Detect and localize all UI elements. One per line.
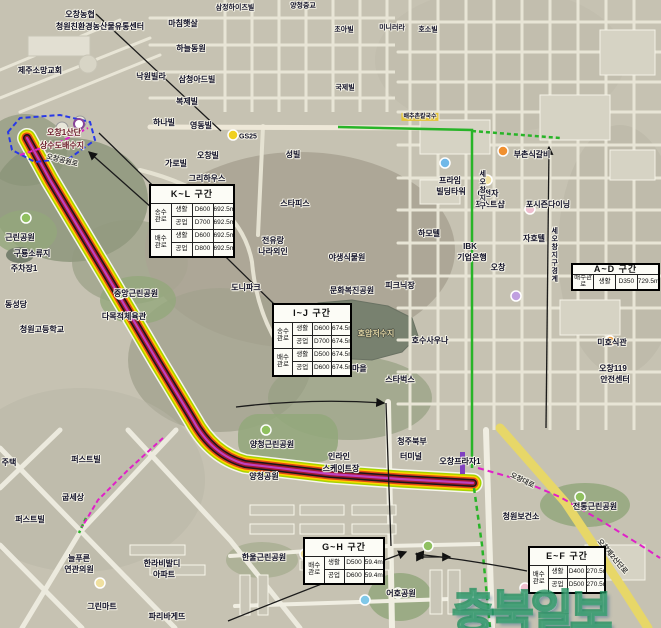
section-table-title: K~L 구간	[150, 185, 234, 203]
pipe-value-cell: 692.5m	[213, 203, 234, 216]
poi-blue	[440, 158, 450, 168]
pipe-value-cell: 692.5m	[213, 230, 234, 243]
pipe-group-label: 송수 관로	[150, 203, 171, 229]
poi-cream	[95, 578, 105, 588]
pipe-value-cell: D700	[192, 217, 213, 230]
pipe-value-cell: 생활	[324, 557, 344, 570]
pipe-value-cell: D600	[192, 230, 213, 243]
section-table-GH: G~H 구간배수 관로생활D50059.4m공업D60059.4m	[303, 537, 385, 585]
pipe-value-cell: 생활	[293, 349, 313, 362]
section-table-title: E~F 구간	[529, 547, 605, 566]
pipe-value-cell: 270.5m	[586, 579, 605, 593]
pipe-value-cell: 674.5m	[332, 322, 352, 335]
pipe-value-cell: 729.5m	[637, 275, 659, 290]
pipe-group-label: 배수 관로	[304, 557, 324, 584]
pipe-value-cell: 공업	[324, 570, 344, 584]
pipe-group-label: 배수 관로	[273, 349, 293, 376]
pipe-value-cell: 270.5m	[586, 566, 605, 579]
poi-park	[21, 213, 31, 223]
pipe-value-cell: 공업	[171, 243, 192, 257]
pipe-group-label: 배수 관로	[150, 230, 171, 257]
pipe-value-cell: 생활	[171, 203, 192, 216]
pipe-group-label: 송수 관로	[273, 322, 293, 348]
pipe-value-cell: 공업	[171, 217, 192, 230]
poi-park	[115, 289, 125, 299]
pipe-value-cell: D600	[312, 362, 332, 376]
pipe-value-cell: D400	[567, 566, 586, 579]
pipe-value-cell: 생활	[293, 322, 313, 335]
poi-park	[423, 541, 433, 551]
poi-restaurant	[498, 146, 508, 156]
section-table-KL: K~L 구간송수 관로생활D600692.5m공업D700692.5m배수 관로…	[149, 184, 235, 258]
pipe-value-cell: D500	[312, 349, 332, 362]
pipe-value-cell: 생활	[171, 230, 192, 243]
pipe-value-cell: 59.4m	[364, 570, 384, 584]
poi-restaurant	[605, 336, 615, 346]
pipe-value-cell: D600	[192, 203, 213, 216]
pipe-value-cell: 공업	[293, 336, 313, 349]
section-table-AD: A~D 구간배수관로생활D350729.5m	[571, 263, 660, 291]
pipe-value-cell: D700	[312, 336, 332, 349]
pipe-value-cell: 생활	[594, 275, 616, 290]
pipe-value-cell: 674.5m	[332, 349, 352, 362]
section-table-EF: E~F 구간배수 관로생활D400270.5m공업D500270.5m	[528, 546, 606, 594]
section-table-title: G~H 구간	[304, 538, 384, 557]
poi-blue	[360, 595, 370, 605]
pipe-value-cell: D350	[616, 275, 638, 290]
pipe-value-cell: 674.5m	[332, 336, 352, 349]
poi-park	[575, 492, 585, 502]
poi-cream	[482, 175, 492, 185]
purple-marker	[460, 452, 465, 474]
pipe-value-cell: 692.5m	[213, 243, 234, 257]
pipe-group-label: 배수관로	[572, 275, 594, 290]
poi-pink	[525, 204, 535, 214]
pipe-group-label: 배수 관로	[529, 566, 548, 593]
site-pin	[74, 119, 84, 129]
pipe-value-cell: 59.4m	[364, 557, 384, 570]
pipe-value-cell: 공업	[548, 579, 567, 593]
pipe-value-cell: 공업	[293, 362, 313, 376]
pipe-value-cell: 674.5m	[332, 362, 352, 376]
poi-park	[261, 425, 271, 435]
pipe-value-cell: D600	[312, 322, 332, 335]
pipe-value-cell: D500	[344, 557, 364, 570]
pipe-value-cell: 생활	[548, 566, 567, 579]
poi-park	[393, 588, 403, 598]
section-table-title: A~D 구간	[572, 264, 659, 275]
pipe-value-cell: D500	[567, 579, 586, 593]
poi-purple	[511, 291, 521, 301]
pipe-value-cell: 692.5m	[213, 217, 234, 230]
pipe-value-cell: D600	[344, 570, 364, 584]
pipe-value-cell: D800	[192, 243, 213, 257]
poi-store	[228, 130, 238, 140]
section-table-title: I~J 구간	[273, 304, 351, 322]
section-table-IJ: I~J 구간송수 관로생활D600674.5m공업D700674.5m배수 관로…	[272, 303, 352, 377]
map-canvas[interactable]: 오창농협청원친환경농산물유통센터제주소망교회마침햇살하늘동원낙원빌라삼청아드빌복…	[0, 0, 661, 628]
